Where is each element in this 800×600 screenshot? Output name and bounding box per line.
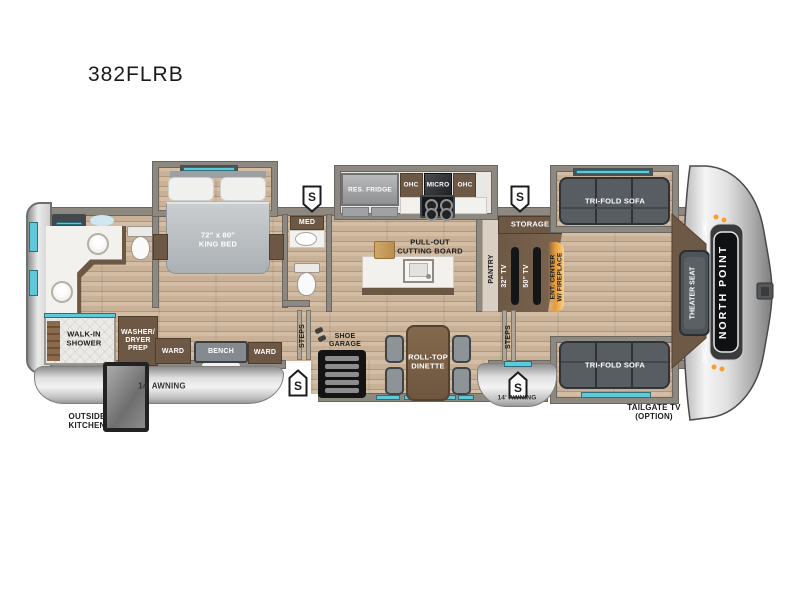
shoe-garage-label: SHOE GARAGE xyxy=(329,333,361,349)
svg-text:S: S xyxy=(308,190,316,204)
dinette-chair xyxy=(452,335,471,363)
awning-label: 14' AWNING xyxy=(138,381,186,390)
overhead-cabinet-label: OHC xyxy=(702,220,709,235)
overhead-cabinet-label: OHC xyxy=(403,181,418,188)
fridge-label: RES. FRIDGE xyxy=(348,186,392,193)
rear-window-icon xyxy=(29,270,38,296)
microwave-label: MICRO xyxy=(427,181,450,188)
sofa-window-icon xyxy=(581,392,651,398)
tv-50-label: 50" TV xyxy=(523,264,531,287)
dinette-label: ROLL-TOP DINETTE xyxy=(408,353,448,370)
hitch-pin-inner-icon xyxy=(761,287,769,296)
storage-label: STORAGE xyxy=(511,221,549,230)
skylight-glass-icon xyxy=(56,222,82,225)
sofa-label: TRI-FOLD SOFA xyxy=(585,362,645,371)
fridge-drawer-icon xyxy=(342,207,369,217)
tv-32-icon xyxy=(511,247,519,305)
front-cap: OHC OHC THEATER SEAT NORTH POINT xyxy=(670,158,782,424)
bay-window-icon xyxy=(458,395,474,400)
svg-text:S: S xyxy=(516,190,524,204)
wardrobe-label: WARD xyxy=(254,349,276,357)
steps-label: STEPS xyxy=(299,324,307,348)
washer-dryer-label: WASHER/ DRYER PREP xyxy=(121,329,155,353)
overhead-cabinet-label: OHC xyxy=(457,181,472,188)
sink-icon xyxy=(295,232,317,246)
sofa-label: TRI-FOLD SOFA xyxy=(585,198,645,207)
safety-marker-icon: S xyxy=(288,369,308,397)
floorplan-title: 382FLRB xyxy=(88,63,184,87)
overhead-cabinet-label: OHC xyxy=(702,348,709,363)
pillow-icon xyxy=(168,177,214,201)
midbath-left-wall xyxy=(282,214,288,308)
dinette-chair xyxy=(452,367,471,395)
toilet-bowl-icon xyxy=(131,236,150,260)
steps-label: STEPS xyxy=(505,325,513,349)
safety-marker-icon: S xyxy=(302,185,322,213)
bath-bedroom-wall xyxy=(152,212,159,308)
vent-glow-icon xyxy=(90,215,114,226)
marker-light-icon xyxy=(712,365,717,370)
svg-text:S: S xyxy=(514,381,522,395)
entry-steps xyxy=(318,350,366,398)
bay-window-icon xyxy=(376,395,400,400)
theater-seat-label: THEATER SEAT xyxy=(690,266,697,319)
toilet-bowl-icon xyxy=(297,272,316,296)
door-window-icon xyxy=(504,361,532,367)
tv-32-label: 32" TV xyxy=(501,264,509,287)
nightstand-icon xyxy=(269,234,284,260)
brand-badge-label: NORTH POINT xyxy=(717,245,729,339)
sink-icon xyxy=(87,233,109,255)
cutting-board-icon xyxy=(374,241,395,259)
midbath-right-wall xyxy=(326,214,332,312)
fridge-drawer-icon xyxy=(371,207,398,217)
safety-marker-icon: S xyxy=(510,185,530,213)
shower-bench-icon xyxy=(47,321,60,361)
marker-light-icon xyxy=(722,218,727,223)
medicine-cabinet-label: MED xyxy=(299,219,315,227)
entertainment-center-label: ENT. CENTER W/ FIREPLACE xyxy=(550,253,565,302)
marker-light-icon xyxy=(720,367,725,372)
floorplan-canvas: 382FLRB xyxy=(0,0,800,600)
midbath-bottom-wall xyxy=(282,300,310,307)
awning-label: 14' AWNING xyxy=(497,394,536,401)
tailgate-tv-label: TAILGATE TV (OPTION) xyxy=(627,403,680,421)
faucet-icon xyxy=(426,274,431,279)
outside-kitchen-label: OUTSIDE KITCHEN xyxy=(69,412,106,430)
svg-text:S: S xyxy=(294,379,302,393)
pillow-icon xyxy=(220,177,266,201)
skylight-vent-icon xyxy=(52,214,86,227)
walk-in-shower-label: WALK-IN SHOWER xyxy=(67,330,102,347)
sink-icon xyxy=(51,281,73,303)
cutting-board-label: PULL-OUT CUTTING BOARD xyxy=(397,238,463,255)
nightstand-icon xyxy=(153,234,168,260)
dinette-chair xyxy=(385,335,404,363)
pantry-label: PANTRY xyxy=(488,254,496,283)
rear-window-icon xyxy=(29,222,38,252)
tv-50-icon xyxy=(533,247,541,305)
dinette-chair xyxy=(385,367,404,395)
bench-label: BENCH xyxy=(208,348,234,356)
sofa-window-icon xyxy=(576,170,650,174)
outside-kitchen-door xyxy=(103,362,149,432)
cooktop xyxy=(420,195,455,218)
shower-glass-icon xyxy=(44,313,116,318)
king-bed-label: 72" x 80" KING BED xyxy=(199,231,237,248)
marker-light-icon xyxy=(714,215,719,220)
wardrobe-label: WARD xyxy=(162,348,184,356)
